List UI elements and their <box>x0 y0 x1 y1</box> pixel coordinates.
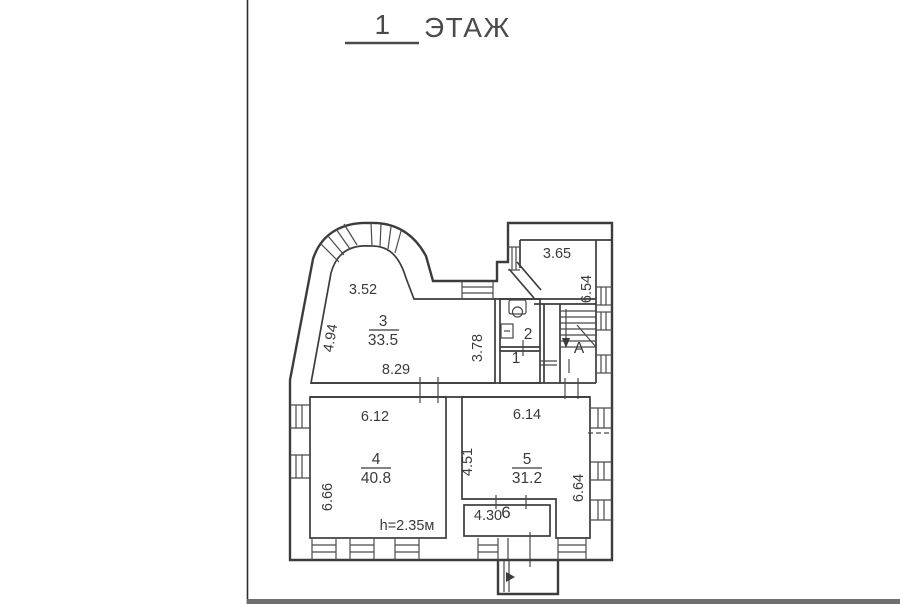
room4-number: 4 <box>372 451 381 468</box>
dim-room3-bottom: 8.29 <box>382 362 410 378</box>
wc-block-outline <box>500 299 540 383</box>
window-vestibule <box>508 247 520 270</box>
room2-number: 2 <box>524 326 533 343</box>
room3-number: 3 <box>379 313 388 330</box>
window-bottom-3 <box>395 538 419 560</box>
outer-boundary <box>290 223 612 560</box>
title-word: ЭТАЖ <box>424 12 511 43</box>
window-symbols <box>290 223 612 560</box>
window-bottom-4 <box>478 538 498 560</box>
room4-area: 40.8 <box>361 470 391 487</box>
dim-room6-width: 4.30 <box>474 508 502 524</box>
toilet-bowl-icon <box>513 307 523 317</box>
dim-hall-top: 3.65 <box>543 246 571 262</box>
window-left-2 <box>290 455 310 478</box>
dim-hall-right: 6.54 <box>579 275 595 303</box>
room5-area: 31.2 <box>512 470 542 487</box>
window-right-6 <box>590 500 612 520</box>
chamfer-wall-b <box>517 262 541 290</box>
window-top-1 <box>462 281 493 299</box>
dim-room4-top: 6.12 <box>361 409 389 425</box>
window-right-2 <box>596 312 612 330</box>
dim-room3-left: 4.94 <box>321 323 342 354</box>
window-right-1 <box>596 287 612 305</box>
dim-room3-top: 3.52 <box>349 282 377 298</box>
drawing-title: 1 ЭТАЖ <box>345 9 511 43</box>
porch-arrow-icon <box>506 572 515 582</box>
window-right-5 <box>590 462 612 480</box>
bathroom-fixtures <box>501 300 526 338</box>
dim-room4-left: 6.66 <box>320 483 336 511</box>
dim-room5-left: 4.51 <box>460 448 476 476</box>
scan-artifacts <box>247 0 900 604</box>
bottom-scan-bar <box>247 599 900 604</box>
door-openings <box>420 340 578 592</box>
chamfer-wall-a <box>509 269 534 298</box>
scanned-floorplan-page: 1 ЭТАЖ <box>0 0 900 604</box>
window-bottom-2 <box>350 538 374 560</box>
window-bottom-1 <box>312 538 336 560</box>
ceiling-height-label: h=2.35м <box>380 518 435 534</box>
labels: 3.52 4.94 8.29 3.78 3 33.5 2 1 А 3.65 6.… <box>320 246 595 534</box>
room6-number: 6 <box>501 503 510 522</box>
window-right-3 <box>596 355 612 373</box>
title-number: 1 <box>374 9 391 40</box>
dim-room5-right: 6.64 <box>571 474 587 502</box>
dim-room5-top: 6.14 <box>513 407 541 423</box>
window-right-4 <box>590 408 612 428</box>
room5-number: 5 <box>523 451 532 468</box>
room3-area: 33.5 <box>368 332 398 349</box>
room1-number: 1 <box>512 350 521 367</box>
window-left-1 <box>290 405 310 428</box>
floor-plan-drawing: 1 ЭТАЖ <box>0 0 900 604</box>
dim-room3-right: 3.78 <box>470 334 486 362</box>
stairwell-letter: А <box>574 340 585 357</box>
window-bottom-5 <box>558 538 586 560</box>
